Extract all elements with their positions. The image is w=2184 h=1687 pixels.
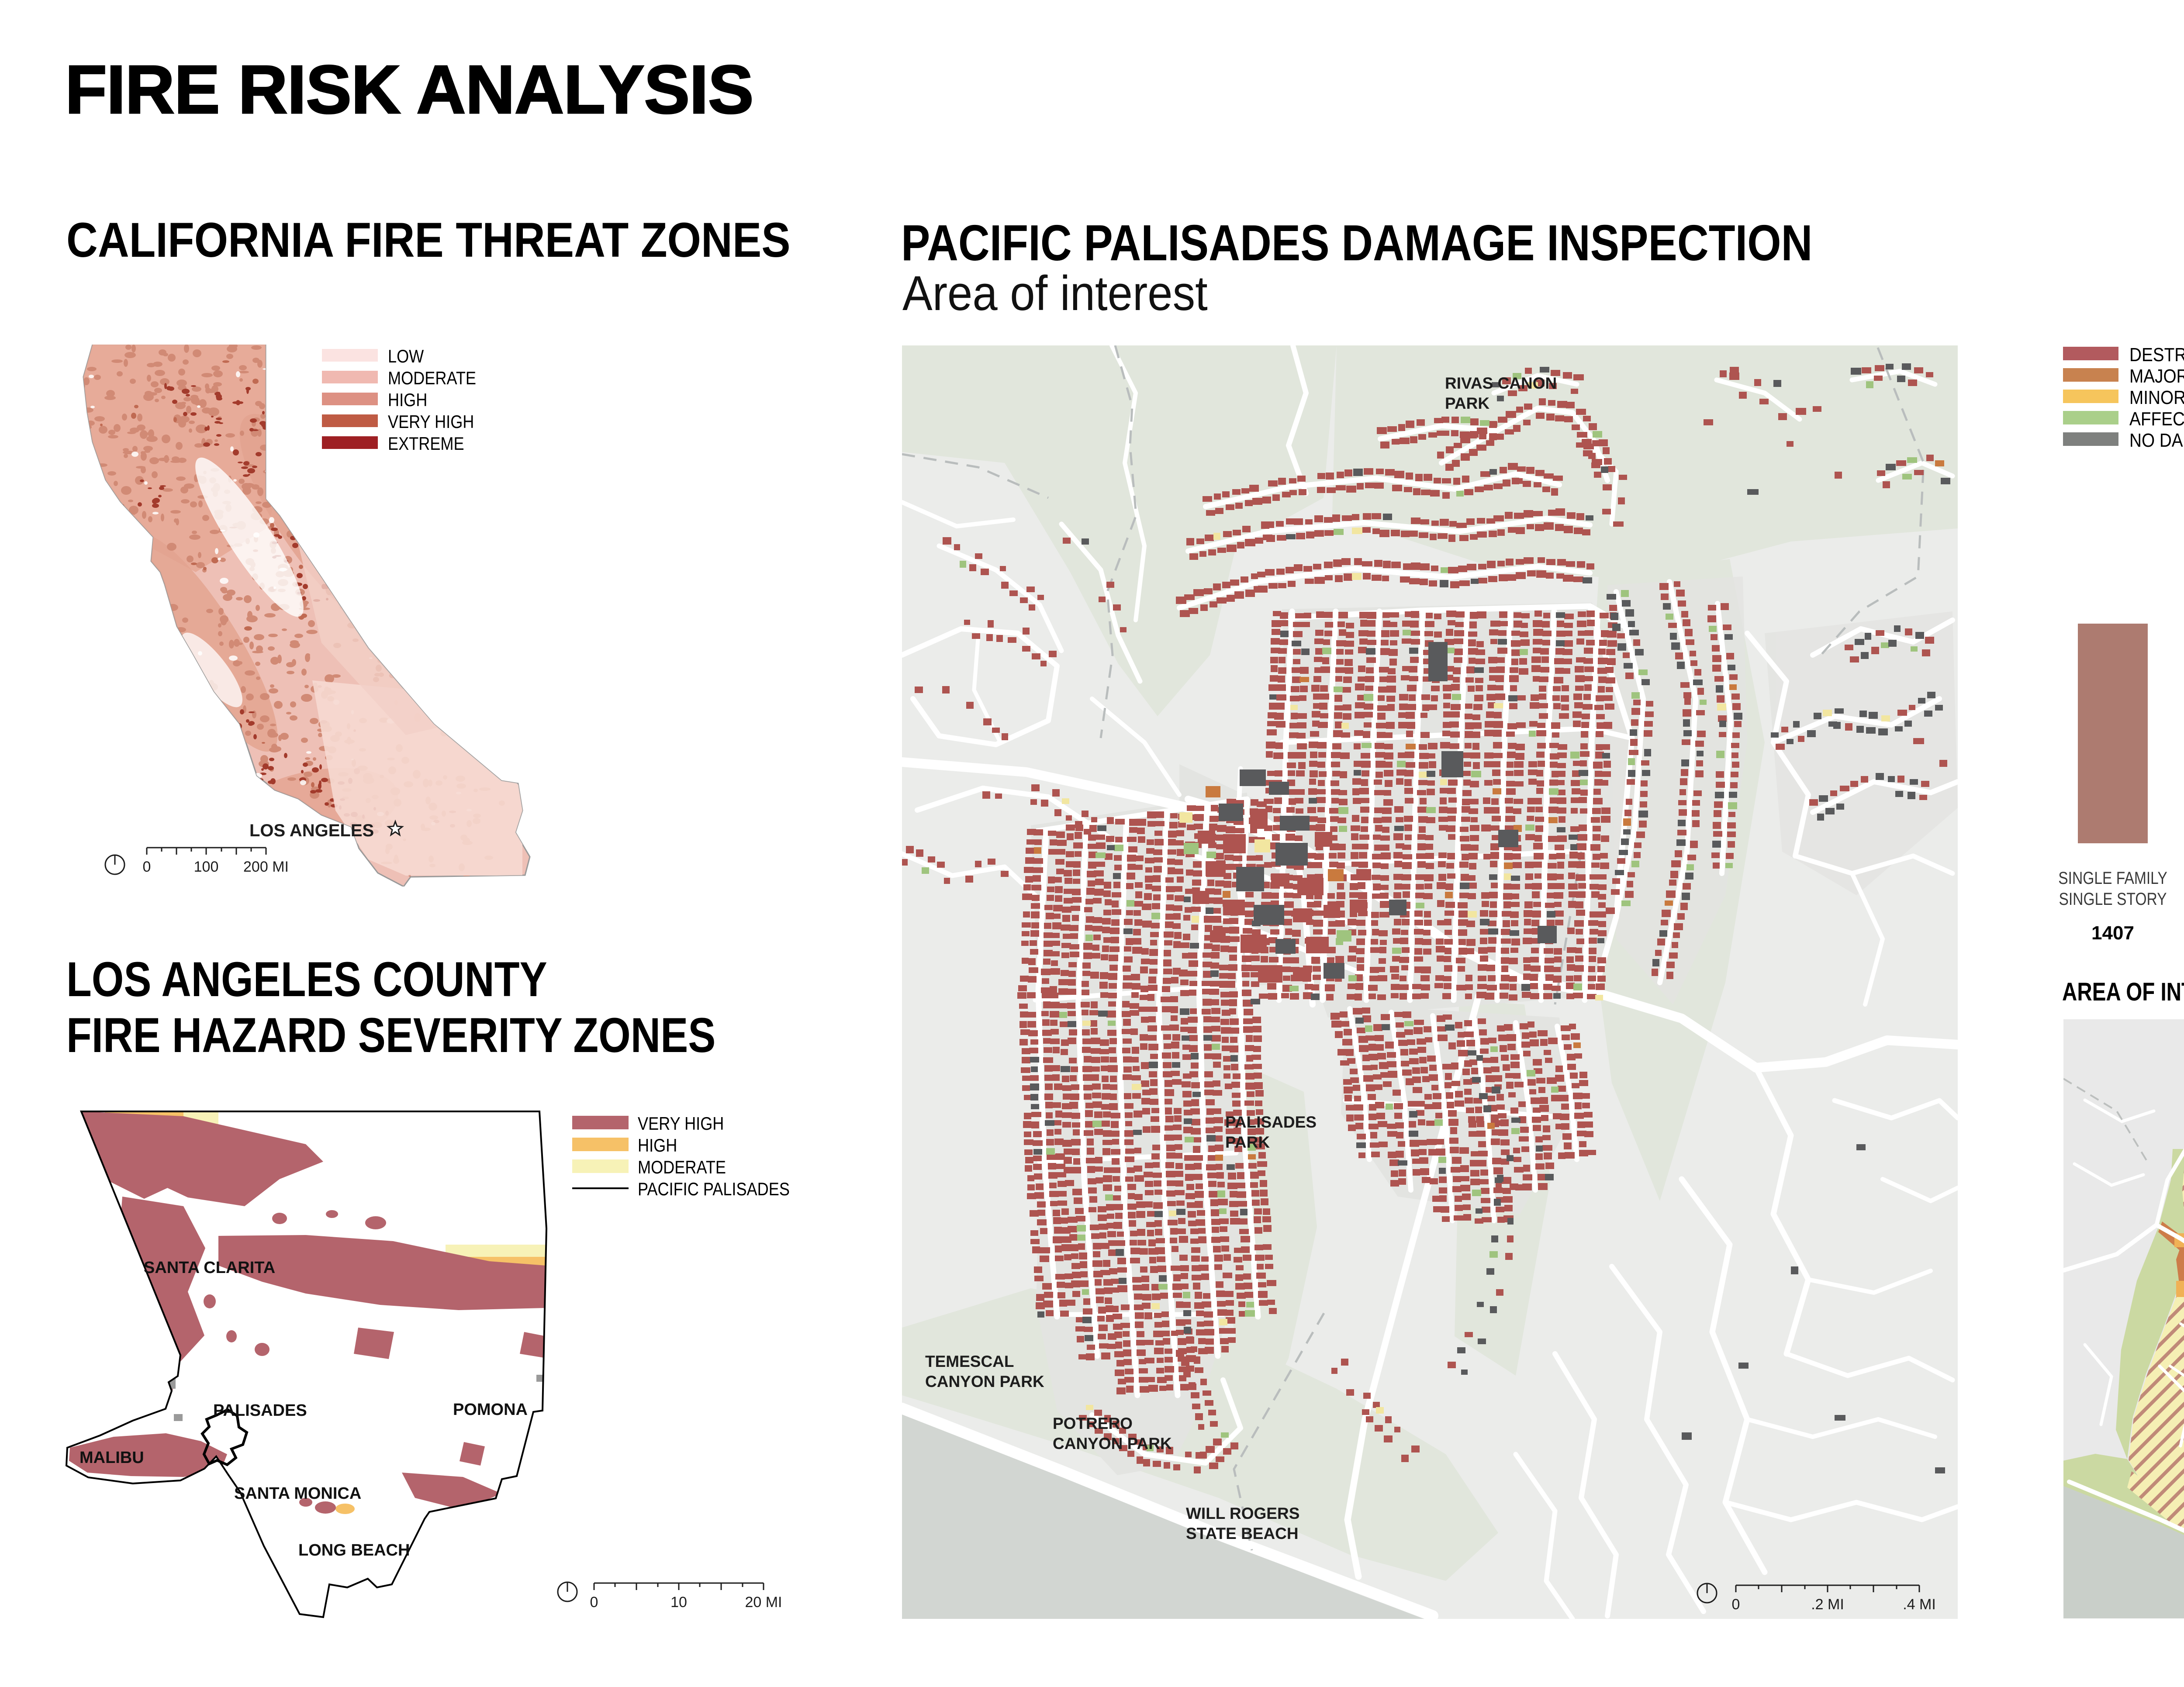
svg-text:POMONA: POMONA	[453, 1401, 528, 1419]
svg-text:100: 100	[194, 859, 219, 875]
svg-text:LONG BEACH: LONG BEACH	[298, 1541, 410, 1559]
svg-text:RIVAS CANON: RIVAS CANON	[1445, 374, 1557, 392]
svg-text:STATE BEACH: STATE BEACH	[1186, 1525, 1299, 1542]
svg-text:PALISADES: PALISADES	[1225, 1113, 1317, 1131]
svg-text:PARK: PARK	[1225, 1133, 1270, 1151]
svg-text:LOS ANGELES: LOS ANGELES	[249, 821, 374, 840]
svg-text:10: 10	[670, 1594, 687, 1611]
svg-text:POTRERO: POTRERO	[1053, 1414, 1133, 1432]
svg-text:WILL ROGERS: WILL ROGERS	[1186, 1504, 1299, 1522]
svg-text:CANYON PARK: CANYON PARK	[1053, 1435, 1172, 1452]
svg-text:SANTA CLARITA: SANTA CLARITA	[144, 1259, 275, 1277]
svg-text:0: 0	[590, 1594, 598, 1611]
svg-text:.4 MI: .4 MI	[1903, 1596, 1936, 1613]
svg-text:0: 0	[143, 859, 151, 875]
svg-text:0: 0	[1732, 1596, 1740, 1613]
svg-text:200 MI: 200 MI	[243, 859, 289, 875]
svg-text:PARK: PARK	[1445, 394, 1489, 412]
svg-text:MALIBU: MALIBU	[79, 1449, 144, 1467]
svg-text:20 MI: 20 MI	[745, 1594, 782, 1611]
svg-text:PALISADES: PALISADES	[213, 1401, 307, 1420]
svg-text:TEMESCAL: TEMESCAL	[925, 1352, 1014, 1370]
svg-text:SANTA MONICA: SANTA MONICA	[234, 1484, 361, 1503]
svg-text:.2 MI: .2 MI	[1811, 1596, 1844, 1613]
svg-text:CANYON PARK: CANYON PARK	[925, 1373, 1044, 1390]
